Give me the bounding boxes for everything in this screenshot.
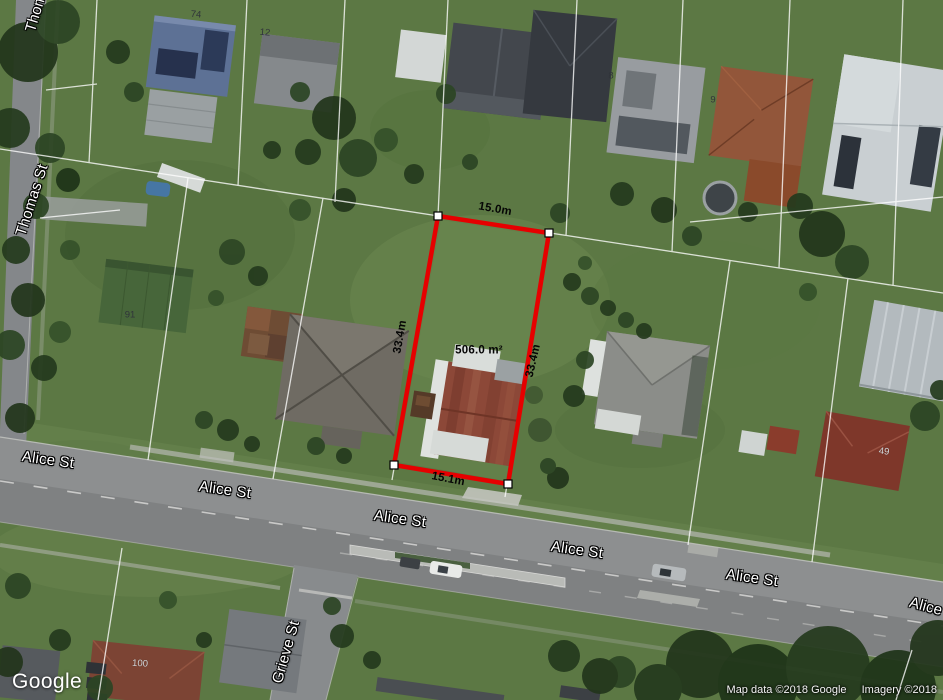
measurement-area: 506.0 m² (455, 345, 503, 357)
house-gray-8 (606, 57, 705, 163)
shed-green (98, 259, 193, 333)
attribution-imagery: Imagery ©2018 (862, 684, 937, 696)
shed-gray-left (144, 89, 217, 143)
house-charcoal (523, 10, 617, 122)
boundary-handle-bottom-right[interactable] (504, 480, 512, 488)
map-canvas[interactable]: Thomas St Thomas St Alice St Alice St Al… (0, 0, 943, 700)
house-number-8: 8 (608, 71, 613, 81)
trampoline (145, 181, 171, 198)
house-number-49: 49 (878, 447, 890, 458)
house-number-91: 91 (125, 310, 136, 320)
shed-white-small (738, 430, 767, 456)
house-number-100: 100 (132, 659, 148, 670)
attribution-map-data: Map data ©2018 Google (727, 684, 847, 696)
boundary-handle-bottom-left[interactable] (390, 461, 398, 469)
house-blue-roof (146, 15, 236, 96)
map-attribution: Map data ©2018 Google Imagery ©2018 (727, 685, 937, 696)
google-logo[interactable]: Google (12, 671, 82, 692)
shed-red-small (766, 426, 799, 454)
boundary-handle-top-right[interactable] (545, 229, 553, 237)
water-tank (704, 182, 736, 214)
house-number-74: 74 (190, 10, 201, 20)
house-number-12: 12 (259, 28, 270, 38)
boundary-handle-top-left[interactable] (434, 212, 442, 220)
house-number-9: 9 (710, 95, 715, 105)
shed-white-top (395, 29, 447, 82)
